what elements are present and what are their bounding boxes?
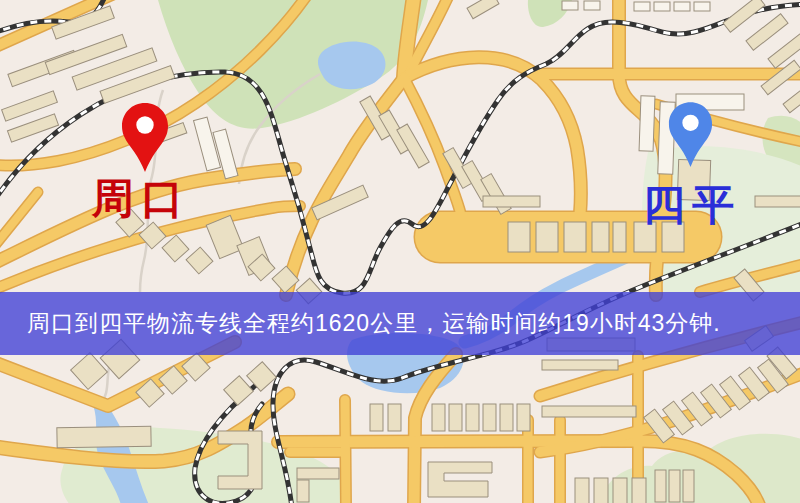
building [542,406,636,417]
building [639,96,655,151]
destination-city-label: 四平 [643,184,741,226]
building [57,426,151,448]
location-pin-icon [122,103,168,172]
building [674,2,690,11]
building [432,404,445,431]
road [345,400,346,503]
building [370,404,383,431]
building [584,1,600,10]
building [634,2,650,11]
pin-hole [682,115,698,131]
building [483,196,540,207]
building [564,222,586,252]
building [500,404,513,431]
building [562,1,578,10]
building [449,404,462,431]
building [683,470,694,502]
building [483,404,496,431]
building [594,478,608,503]
building [466,404,479,431]
building [536,222,558,252]
origin-marker-icon[interactable] [121,102,169,174]
route-info-text: 周口到四平物流专线全程约1620公里，运输时间约19小时43分钟. [27,308,721,339]
building [388,404,401,431]
map-viewport[interactable]: 周口到四平物流专线全程约1620公里，运输时间约19小时43分钟. 周口 四平 [0,0,800,503]
pin-hole [136,116,153,133]
building [654,2,670,11]
building [755,196,800,207]
building [517,404,530,431]
building [297,468,339,479]
building [669,470,680,502]
route-info-banner: 周口到四平物流专线全程约1620公里，运输时间约19小时43分钟. [0,292,800,355]
building [575,478,589,503]
building [542,360,618,370]
building [613,222,626,252]
building [632,478,646,503]
destination-marker-icon[interactable] [668,101,713,169]
building [613,478,627,503]
building [508,222,530,252]
origin-city-label: 周口 [92,178,190,220]
building [297,480,309,502]
building [694,2,710,11]
building [592,222,609,252]
building [655,470,666,502]
map-canvas [0,0,800,503]
location-pin-icon [668,102,711,167]
